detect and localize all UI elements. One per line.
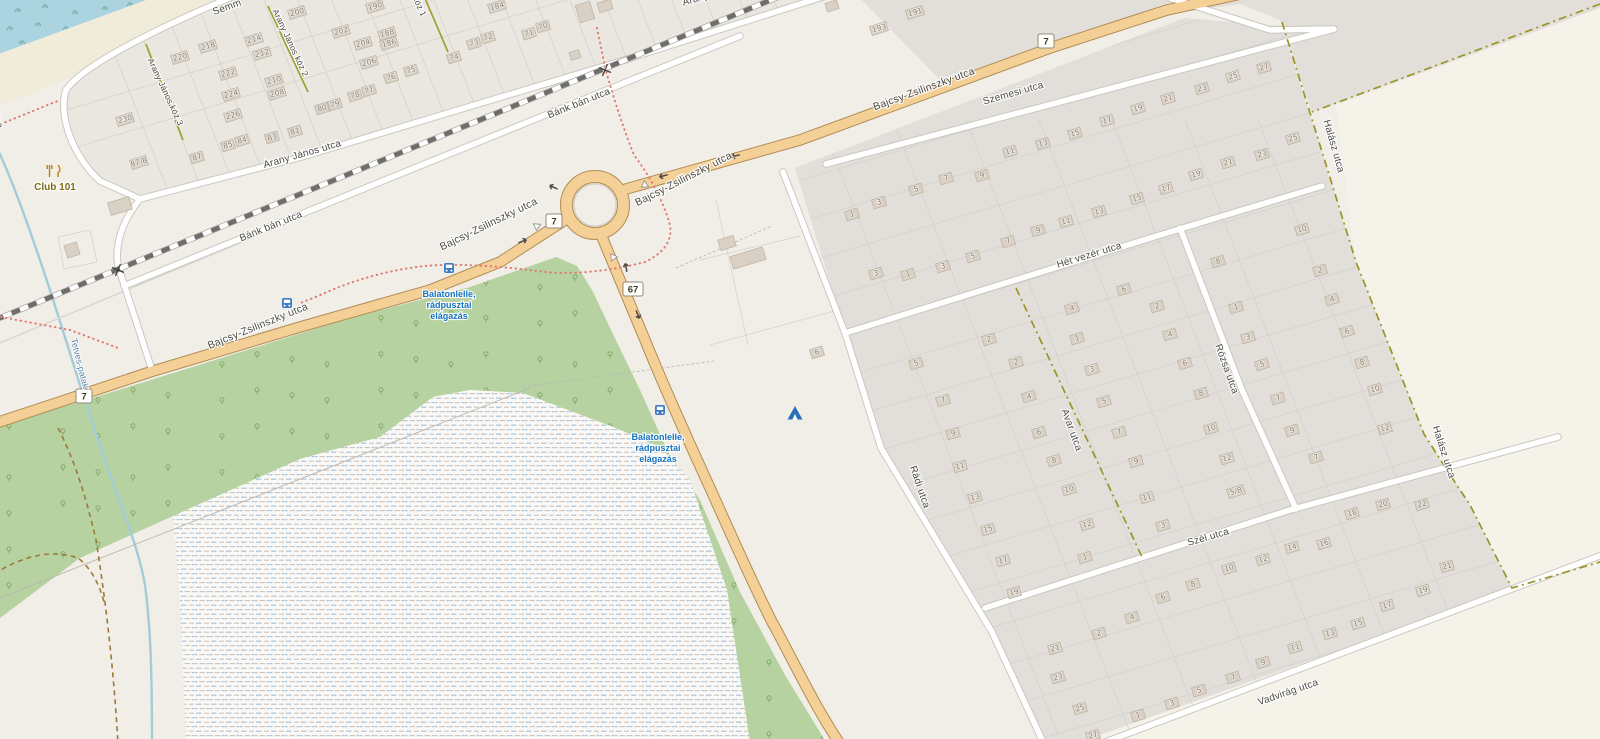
- bus-stop-label: elágazás: [639, 454, 677, 464]
- bus-stop-icon: [655, 405, 665, 415]
- svg-text:67: 67: [628, 285, 639, 296]
- svg-text:7: 7: [81, 392, 86, 403]
- svg-text:7: 7: [1043, 37, 1048, 48]
- bus-stop: [282, 298, 292, 308]
- poi-club-101-label: Club 101: [34, 182, 76, 193]
- bus-stop-label: rádpusztai: [426, 300, 471, 310]
- roundabout-island: [574, 184, 616, 226]
- route-shield-7: 7: [76, 389, 92, 403]
- bus-stop-label: rádpusztai: [635, 443, 680, 453]
- svg-text:7: 7: [551, 217, 556, 228]
- route-shield-7: 7: [1038, 34, 1054, 48]
- bus-stop-icon: [444, 263, 454, 273]
- map-canvas[interactable]: 2202182142122222102082242262302002022042…: [0, 0, 1600, 739]
- bus-stop-icon: [282, 298, 292, 308]
- map-svg: 2202182142122222102082242262302002022042…: [0, 0, 1600, 739]
- bus-stop-label: Balatonlelle,: [422, 289, 475, 299]
- route-shield-67: 67: [623, 282, 643, 296]
- bus-stop-label: Balatonlelle,: [631, 432, 684, 442]
- route-shield-7: 7: [546, 214, 562, 228]
- bus-stop-label: elágazás: [430, 311, 468, 321]
